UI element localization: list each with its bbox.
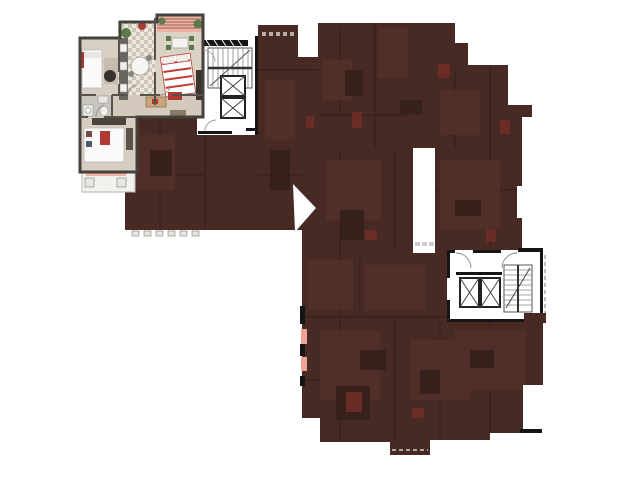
bench	[170, 110, 186, 116]
green-chair	[166, 45, 171, 50]
planter	[117, 178, 126, 187]
floorplan-svg	[0, 0, 640, 480]
toilet	[100, 106, 108, 116]
nightstand	[126, 128, 133, 150]
armchair	[104, 70, 116, 82]
elevator-shafts-west-icon	[221, 76, 245, 118]
wardrobe	[92, 118, 126, 125]
green-chair	[189, 36, 194, 41]
green-chair	[189, 45, 194, 50]
loggia	[157, 16, 203, 32]
stair-elevator-core-east	[447, 248, 546, 323]
dimmed-stub	[524, 313, 546, 323]
elevator-shafts-east-icon	[460, 278, 500, 307]
plant-icon	[194, 20, 203, 29]
plant-icon	[121, 28, 131, 38]
planter	[85, 178, 94, 187]
sink	[98, 96, 108, 103]
dining-table	[172, 38, 188, 48]
plant-icon	[159, 18, 166, 25]
red-pillow	[100, 131, 110, 145]
round-table	[131, 57, 149, 75]
floorplan-canvas	[0, 0, 640, 480]
unit-balcony	[82, 171, 135, 192]
green-chair	[166, 36, 171, 41]
washing-machine	[83, 105, 93, 116]
